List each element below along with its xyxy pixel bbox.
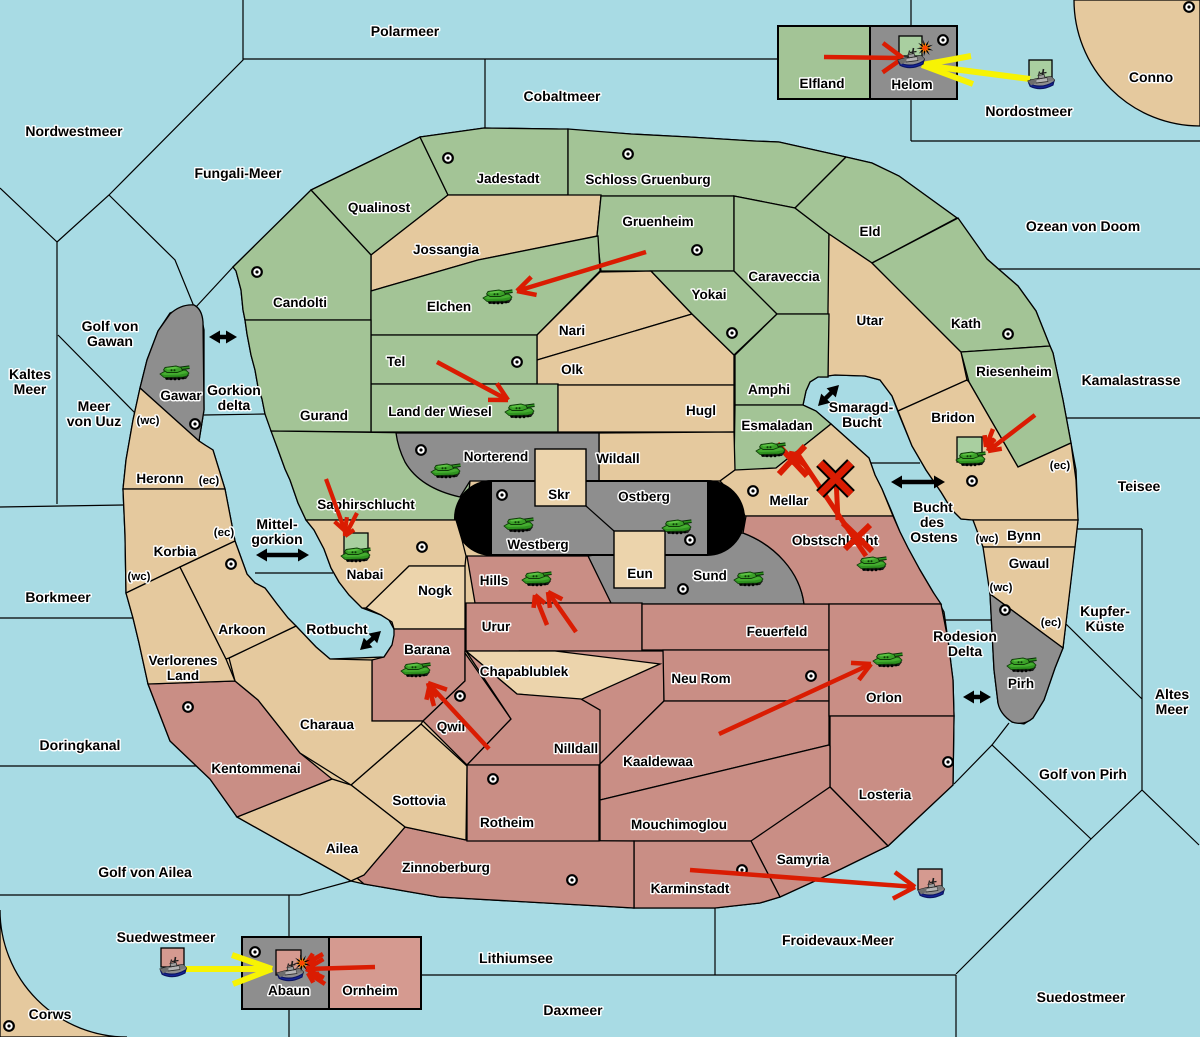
svg-text:Bynn: Bynn <box>1007 528 1041 543</box>
svg-text:Karminstadt: Karminstadt <box>651 881 730 896</box>
svg-text:des: des <box>920 514 944 530</box>
svg-text:Verlorenes: Verlorenes <box>148 653 217 668</box>
svg-text:Westberg: Westberg <box>507 537 568 552</box>
svg-text:Jossangia: Jossangia <box>413 242 480 257</box>
svg-text:Smaragd-: Smaragd- <box>829 399 894 415</box>
svg-text:Golf von Pirh: Golf von Pirh <box>1039 766 1127 782</box>
svg-text:Elfland: Elfland <box>799 76 844 91</box>
svg-text:Cobaltmeer: Cobaltmeer <box>523 88 601 104</box>
svg-text:Daxmeer: Daxmeer <box>543 1002 603 1018</box>
svg-text:Helom: Helom <box>891 77 932 92</box>
svg-text:Korbia: Korbia <box>154 544 197 559</box>
svg-text:Gorkion: Gorkion <box>207 382 261 398</box>
svg-text:Heronn: Heronn <box>136 471 183 486</box>
svg-text:(wc): (wc) <box>137 415 160 427</box>
svg-text:Olk: Olk <box>561 362 583 377</box>
svg-text:(wc): (wc) <box>128 571 151 583</box>
svg-text:von Uuz: von Uuz <box>67 413 121 429</box>
svg-text:Eld: Eld <box>859 224 880 239</box>
svg-text:Kaltes: Kaltes <box>9 366 51 382</box>
svg-text:gorkion: gorkion <box>251 531 302 547</box>
svg-text:Land: Land <box>167 668 199 683</box>
svg-text:Nogk: Nogk <box>418 583 452 598</box>
svg-text:Nordostmeer: Nordostmeer <box>985 103 1073 119</box>
svg-text:Conno: Conno <box>1129 69 1173 85</box>
svg-text:Polarmeer: Polarmeer <box>371 23 440 39</box>
svg-text:Schloss Gruenburg: Schloss Gruenburg <box>585 172 710 187</box>
svg-text:Jadestadt: Jadestadt <box>476 171 540 186</box>
svg-text:Bucht: Bucht <box>913 499 953 515</box>
svg-text:Arkoon: Arkoon <box>218 622 265 637</box>
svg-text:Riesenheim: Riesenheim <box>976 364 1052 379</box>
svg-text:Mittel-: Mittel- <box>256 516 298 532</box>
svg-text:Suedostmeer: Suedostmeer <box>1037 989 1126 1005</box>
svg-text:Fungali-Meer: Fungali-Meer <box>194 165 282 181</box>
svg-text:Meer: Meer <box>1156 701 1189 717</box>
svg-text:Ostberg: Ostberg <box>618 489 670 504</box>
svg-text:Nilldall: Nilldall <box>554 741 598 756</box>
svg-text:Kupfer-: Kupfer- <box>1080 603 1130 619</box>
svg-text:Delta: Delta <box>948 643 982 659</box>
svg-text:(wc): (wc) <box>990 582 1013 594</box>
svg-text:Mellar: Mellar <box>769 493 809 508</box>
svg-text:Rotbucht: Rotbucht <box>306 621 368 637</box>
svg-text:(ec): (ec) <box>199 475 220 487</box>
svg-text:Kaaldewaa: Kaaldewaa <box>623 754 693 769</box>
svg-text:Gawar: Gawar <box>160 388 202 403</box>
svg-text:Golf von Ailea: Golf von Ailea <box>98 864 192 880</box>
svg-text:Esmaladan: Esmaladan <box>741 418 812 433</box>
svg-text:Tel: Tel <box>387 354 406 369</box>
svg-text:Losteria: Losteria <box>859 787 912 802</box>
svg-text:Ozean von Doom: Ozean von Doom <box>1026 218 1140 234</box>
svg-text:Utar: Utar <box>856 313 884 328</box>
svg-text:(ec): (ec) <box>214 527 235 539</box>
svg-text:Kamalastrasse: Kamalastrasse <box>1082 372 1181 388</box>
svg-text:Altes: Altes <box>1155 686 1189 702</box>
svg-text:Lithiumsee: Lithiumsee <box>479 950 553 966</box>
svg-text:Eun: Eun <box>627 566 653 581</box>
svg-text:Meer: Meer <box>14 381 47 397</box>
svg-text:Qualinost: Qualinost <box>348 200 411 215</box>
svg-text:Suedwestmeer: Suedwestmeer <box>117 929 216 945</box>
svg-text:Bucht: Bucht <box>842 414 882 430</box>
svg-text:Teisee: Teisee <box>1118 478 1161 494</box>
svg-text:Sottovia: Sottovia <box>392 793 446 808</box>
svg-text:delta: delta <box>218 397 251 413</box>
svg-text:Norterend: Norterend <box>464 449 529 464</box>
svg-text:Amphi: Amphi <box>748 382 790 397</box>
svg-text:Hugl: Hugl <box>686 403 716 418</box>
svg-text:Abaun: Abaun <box>268 983 310 998</box>
svg-text:Orlon: Orlon <box>866 690 902 705</box>
svg-text:Neu Rom: Neu Rom <box>671 671 730 686</box>
svg-text:Ailea: Ailea <box>326 841 359 856</box>
svg-text:Gawan: Gawan <box>87 333 133 349</box>
svg-text:Ornheim: Ornheim <box>342 983 398 998</box>
svg-text:Nordwestmeer: Nordwestmeer <box>25 123 123 139</box>
svg-text:Doringkanal: Doringkanal <box>40 737 121 753</box>
svg-text:Gurand: Gurand <box>300 408 348 423</box>
svg-text:Bridon: Bridon <box>931 410 975 425</box>
svg-text:Pirh: Pirh <box>1008 676 1034 691</box>
svg-text:(wc): (wc) <box>976 533 999 545</box>
svg-text:Borkmeer: Borkmeer <box>25 589 91 605</box>
svg-text:Yokai: Yokai <box>691 287 726 302</box>
svg-text:Sund: Sund <box>693 568 727 583</box>
svg-text:(ec): (ec) <box>1041 617 1062 629</box>
svg-text:Ostens: Ostens <box>910 529 958 545</box>
svg-text:Nabai: Nabai <box>347 567 384 582</box>
svg-text:Froidevaux-Meer: Froidevaux-Meer <box>782 932 895 948</box>
svg-text:Nari: Nari <box>559 323 585 338</box>
svg-text:Meer: Meer <box>78 398 111 414</box>
svg-text:Skr: Skr <box>548 487 571 502</box>
svg-text:Rotheim: Rotheim <box>480 815 534 830</box>
svg-text:Barana: Barana <box>404 642 450 657</box>
svg-text:Feuerfeld: Feuerfeld <box>747 624 808 639</box>
svg-text:Kath: Kath <box>951 316 981 331</box>
svg-text:Chapablublek: Chapablublek <box>480 664 569 679</box>
svg-text:Gruenheim: Gruenheim <box>622 214 693 229</box>
svg-text:(ec): (ec) <box>1050 460 1071 472</box>
svg-text:Land der Wiesel: Land der Wiesel <box>388 404 491 419</box>
svg-text:Wildall: Wildall <box>596 451 639 466</box>
svg-text:Zinnoberburg: Zinnoberburg <box>402 860 490 875</box>
svg-text:Kentommenai: Kentommenai <box>211 761 300 776</box>
svg-text:Samyria: Samyria <box>777 852 830 867</box>
svg-text:Golf von: Golf von <box>82 318 139 334</box>
svg-text:Candolti: Candolti <box>273 295 327 310</box>
svg-text:Corws: Corws <box>29 1006 72 1022</box>
svg-text:Küste: Küste <box>1086 618 1125 634</box>
svg-text:Urur: Urur <box>482 619 511 634</box>
svg-text:Hills: Hills <box>480 573 509 588</box>
svg-text:Rodesion: Rodesion <box>933 628 997 644</box>
svg-text:Elchen: Elchen <box>427 299 471 314</box>
svg-text:Mouchimoglou: Mouchimoglou <box>631 817 727 832</box>
svg-text:Gwaul: Gwaul <box>1009 556 1050 571</box>
svg-text:Charaua: Charaua <box>300 717 355 732</box>
svg-text:Caraveccia: Caraveccia <box>748 269 820 284</box>
